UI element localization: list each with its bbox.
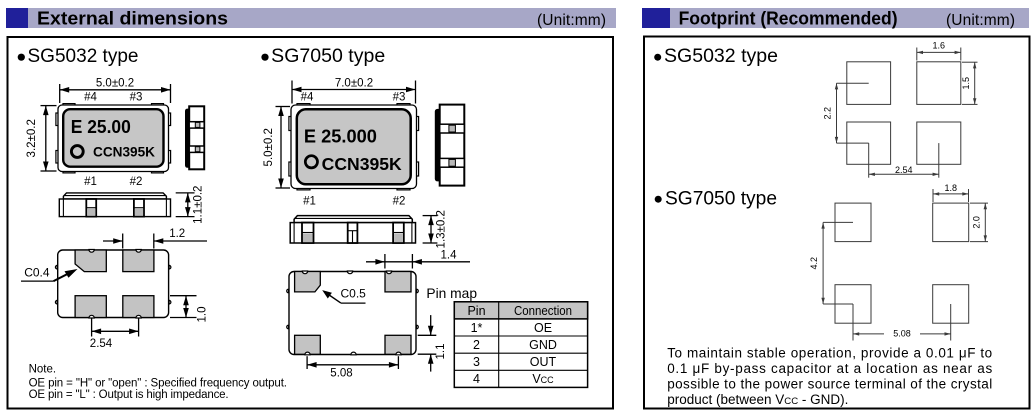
svg-text:1*: 1*: [471, 321, 483, 335]
svg-text:1.2: 1.2: [169, 228, 185, 240]
svg-text:(Unit:mm): (Unit:mm): [946, 12, 1015, 29]
svg-text:#4: #4: [84, 92, 97, 104]
svg-text:Pin: Pin: [467, 304, 485, 318]
svg-text:1.8: 1.8: [944, 183, 957, 193]
svg-text:#2: #2: [393, 195, 406, 207]
svg-text:2.0: 2.0: [971, 216, 981, 229]
svg-text:5.08: 5.08: [330, 368, 352, 380]
svg-text:CCN395K: CCN395K: [322, 154, 402, 174]
svg-text:SG7050 type: SG7050 type: [271, 46, 385, 67]
svg-text:1.6: 1.6: [933, 41, 946, 51]
svg-text:2.2: 2.2: [822, 107, 832, 120]
svg-text:E 25.00: E 25.00: [71, 117, 131, 137]
svg-text:C0.5: C0.5: [341, 286, 367, 300]
svg-text:1.4: 1.4: [441, 250, 458, 262]
svg-text:SG5032 type: SG5032 type: [28, 46, 139, 67]
svg-text:0.1 μF by-pass capacitor at a: 0.1 μF by-pass capacitor at a location a…: [667, 361, 992, 376]
svg-text:OE pin = "L" : Output is high: OE pin = "L" : Output is high impedance.: [29, 389, 229, 401]
svg-text:OUT: OUT: [530, 355, 557, 369]
svg-text:#2: #2: [130, 176, 143, 188]
svg-text:OE pin = "H" or "open" : Speci: OE pin = "H" or "open" : Specified frequ…: [29, 378, 287, 390]
svg-text:SG5032 type: SG5032 type: [664, 46, 778, 67]
svg-text:2: 2: [473, 338, 480, 352]
svg-text:5.08: 5.08: [893, 329, 911, 339]
svg-text:product (between VCC - GND).: product (between VCC - GND).: [667, 392, 848, 407]
svg-text:C0.4: C0.4: [24, 266, 50, 280]
svg-text:Footprint (Recommended): Footprint (Recommended): [679, 8, 898, 29]
svg-text:1.0: 1.0: [197, 307, 209, 323]
svg-text:External dimensions: External dimensions: [37, 8, 228, 29]
svg-text:OE: OE: [534, 321, 552, 335]
svg-text:3: 3: [473, 355, 480, 369]
svg-text:To maintain stable operation,: To maintain stable operation, provide a …: [667, 346, 992, 361]
svg-text:#1: #1: [303, 195, 316, 207]
svg-text:CCN395K: CCN395K: [93, 143, 155, 159]
svg-text:1.1: 1.1: [435, 344, 447, 360]
svg-text:(Unit:mm): (Unit:mm): [537, 12, 606, 29]
svg-text:#3: #3: [130, 92, 143, 104]
svg-text:Note.: Note.: [29, 363, 56, 375]
svg-text:2.54: 2.54: [895, 165, 913, 175]
svg-text:4.2: 4.2: [809, 257, 819, 270]
svg-text:2.54: 2.54: [90, 338, 113, 350]
svg-text:1.1±0.2: 1.1±0.2: [193, 186, 205, 224]
svg-text:3.2±0.2: 3.2±0.2: [26, 119, 38, 157]
svg-text:5.0±0.2: 5.0±0.2: [263, 128, 275, 166]
svg-text:1.5: 1.5: [961, 77, 971, 90]
svg-text:VCC: VCC: [532, 372, 554, 386]
svg-text:Connection: Connection: [514, 304, 572, 318]
svg-text:SG7050 type: SG7050 type: [665, 189, 777, 210]
svg-text:1.3±0.2: 1.3±0.2: [436, 210, 448, 248]
svg-text:#4: #4: [301, 92, 314, 104]
svg-text:possible to the power source t: possible to the power source terminal of…: [667, 377, 992, 392]
svg-text:5.0±0.2: 5.0±0.2: [96, 78, 134, 90]
svg-text:GND: GND: [529, 338, 557, 352]
svg-text:#3: #3: [393, 92, 406, 104]
svg-text:Pin map: Pin map: [426, 286, 477, 301]
svg-text:#1: #1: [84, 176, 97, 188]
svg-text:7.0±0.2: 7.0±0.2: [335, 77, 373, 89]
svg-text:E 25.000: E 25.000: [304, 126, 377, 147]
svg-text:4: 4: [473, 372, 480, 386]
